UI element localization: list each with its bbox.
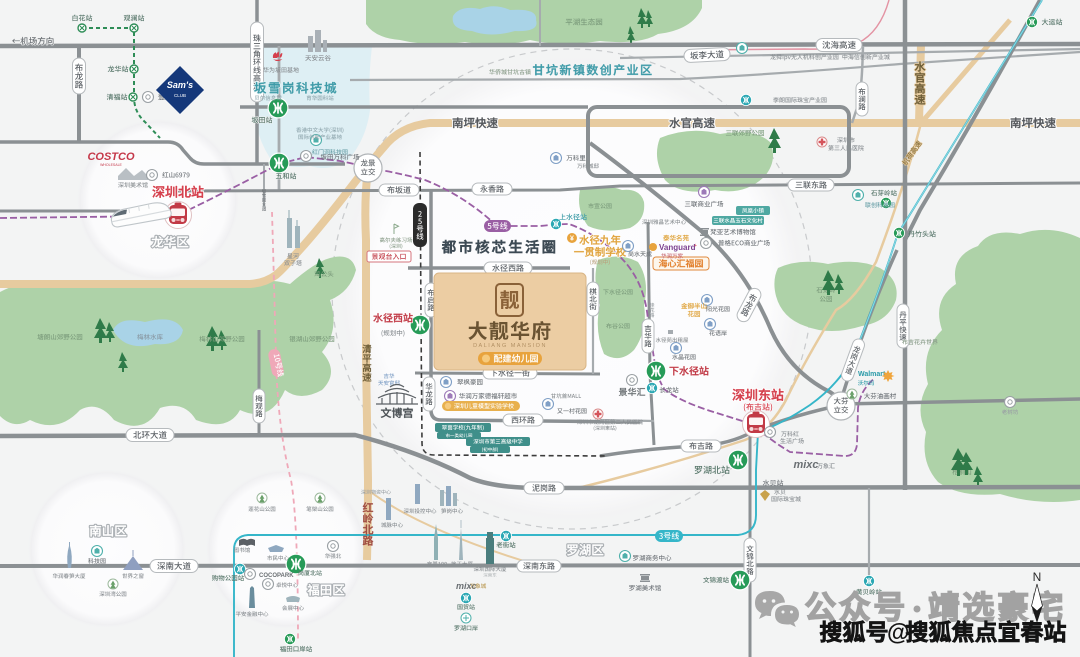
svg-text:CLUB: CLUB — [174, 93, 186, 98]
svg-text:mixc: mixc — [456, 581, 477, 591]
svg-text:N: N — [1033, 570, 1042, 584]
svg-text:WHOLESALE: WHOLESALE — [100, 163, 122, 167]
svg-text:Sam's: Sam's — [167, 80, 193, 90]
svg-text:COSTCO: COSTCO — [87, 151, 135, 163]
svg-text:mixc: mixc — [793, 459, 818, 471]
svg-text:¥: ¥ — [570, 236, 574, 243]
svg-text:+: + — [694, 243, 697, 249]
svg-text:@: @ — [887, 619, 909, 645]
svg-text:DALIANG MANSION: DALIANG MANSION — [473, 343, 547, 349]
svg-text:Vanguard: Vanguard — [659, 243, 696, 252]
svg-text:COCOPARK: COCOPARK — [259, 573, 294, 579]
svg-text:Walmart: Walmart — [858, 371, 886, 378]
